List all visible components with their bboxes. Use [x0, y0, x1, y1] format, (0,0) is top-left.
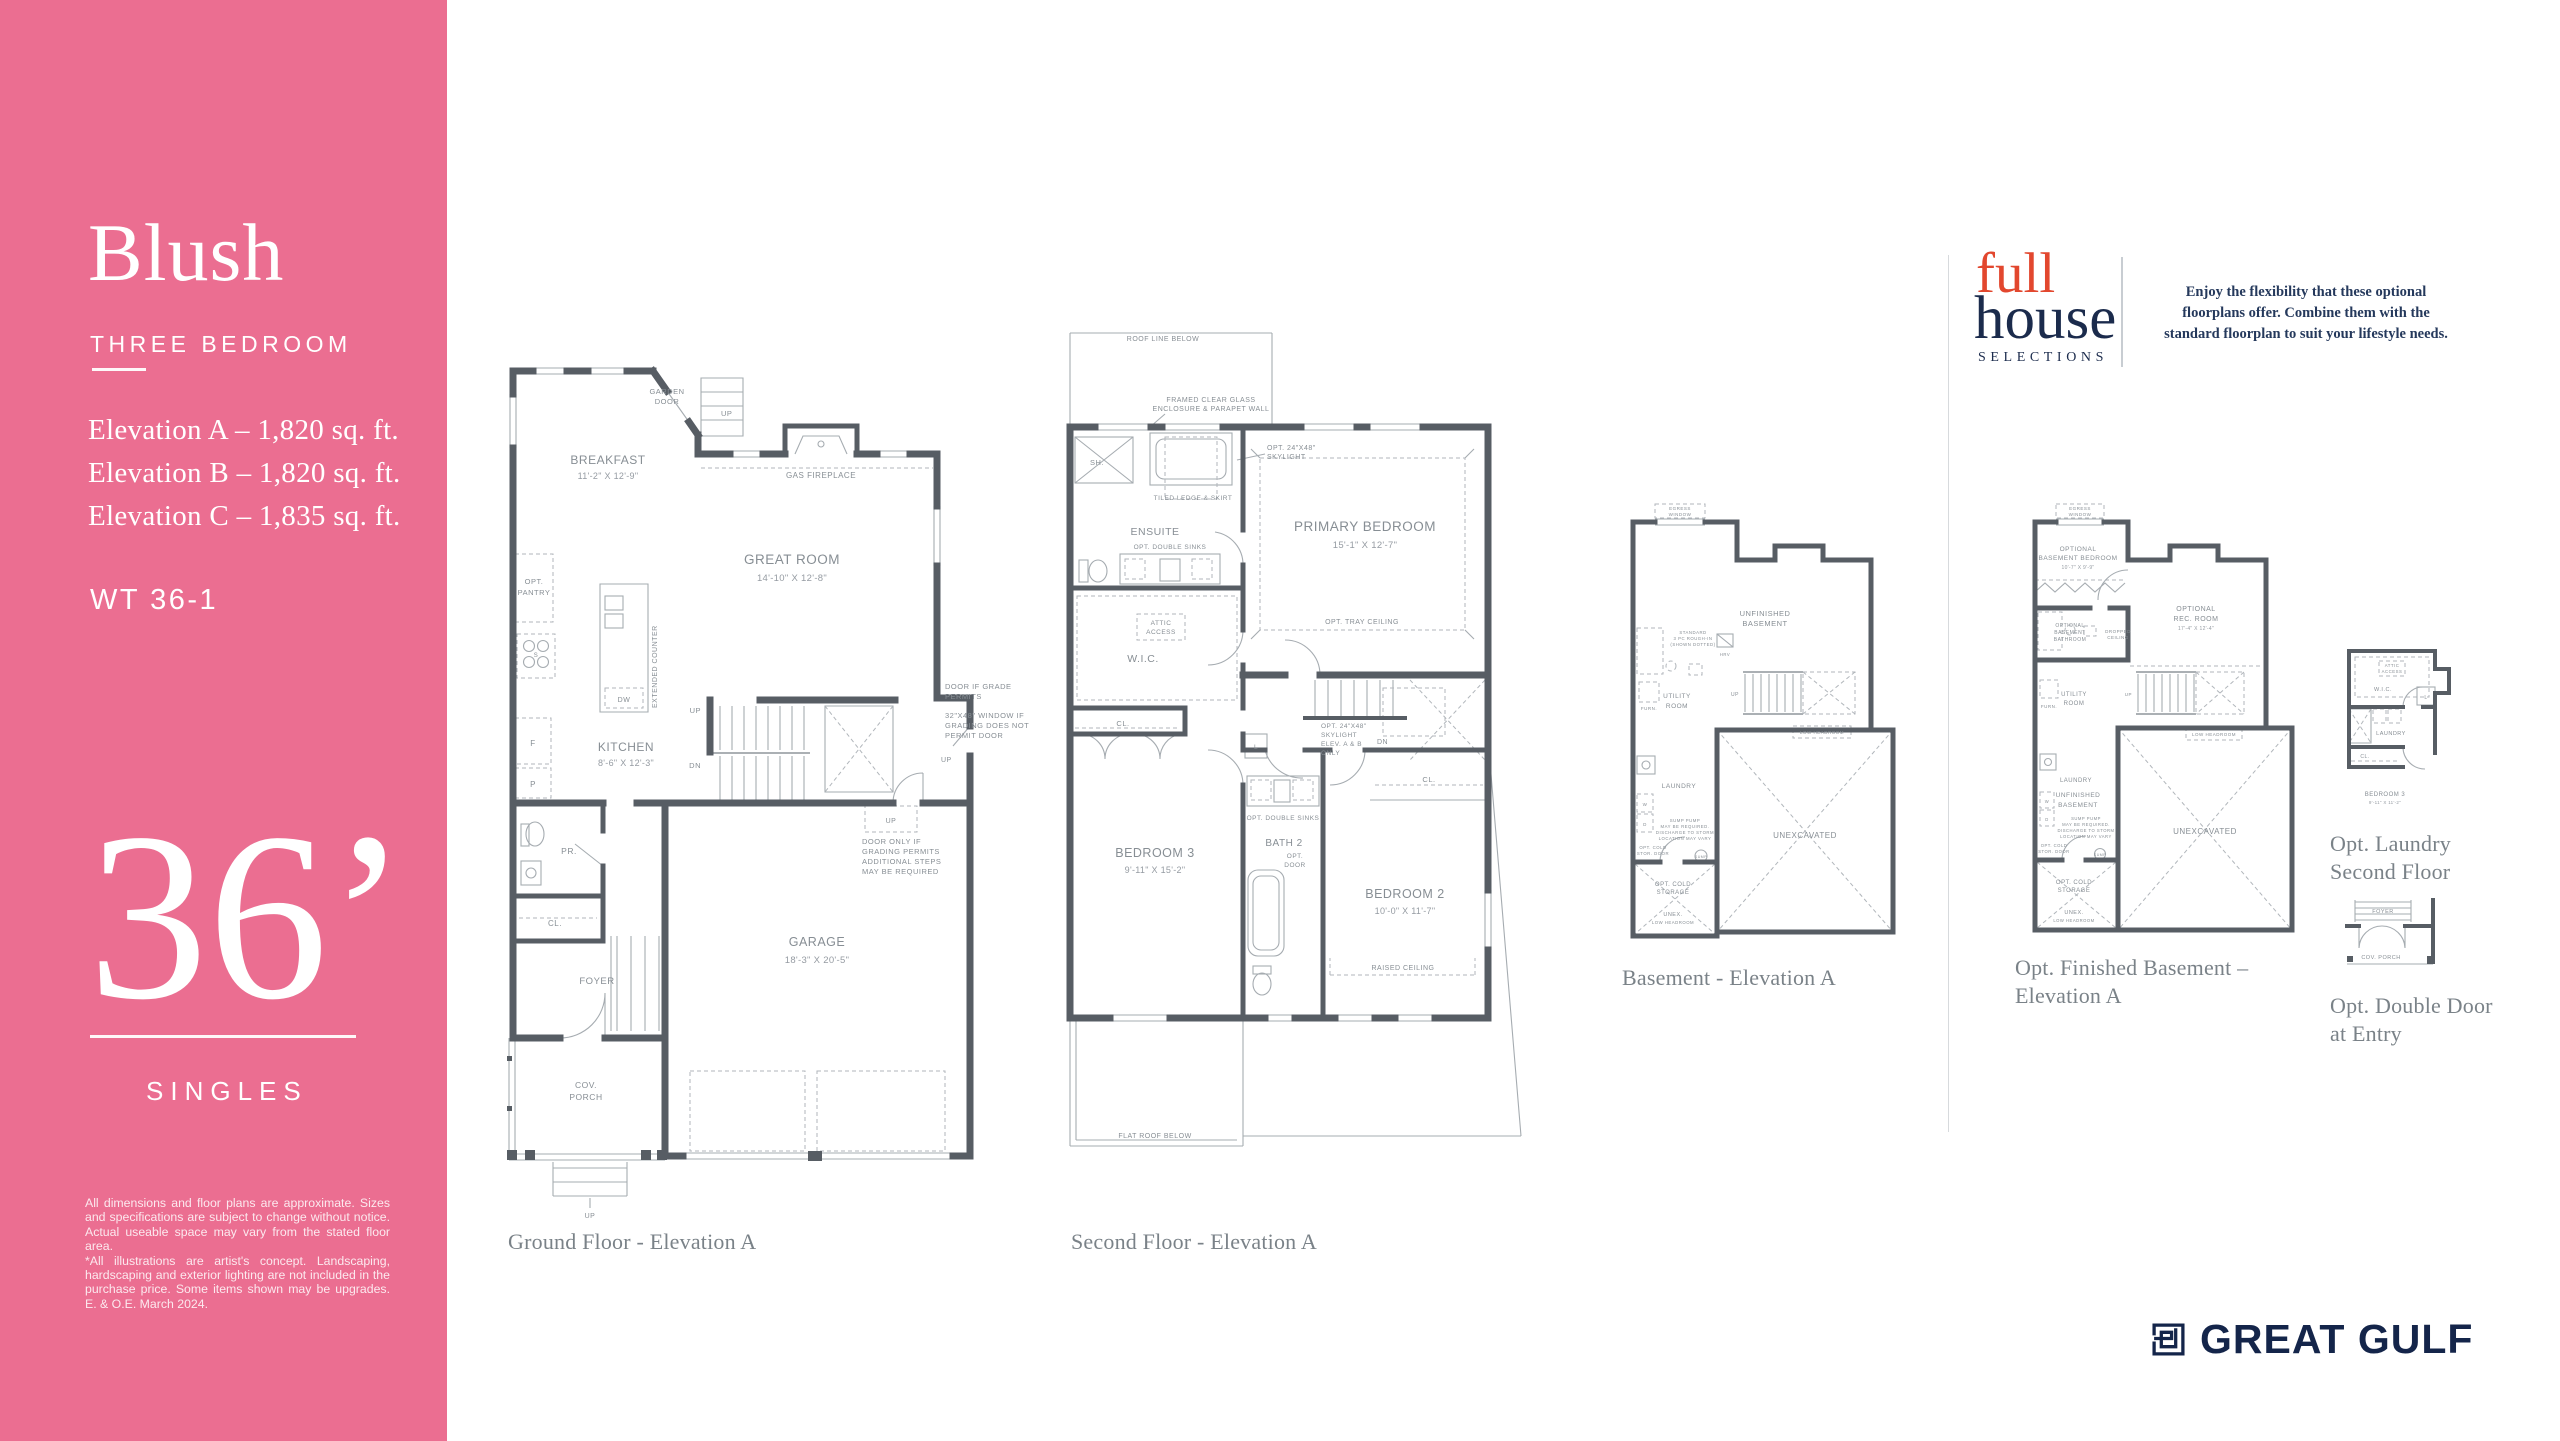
label-dryer: D [1643, 822, 1647, 827]
label-washer: W [1643, 802, 1648, 807]
label-p: P [530, 780, 536, 789]
label-opt-pantry-1: OPT. [525, 577, 544, 586]
fullhouse-blurb-line2: floorplans offer. Combine them with the [2150, 303, 2462, 324]
label-laundry: LAUNDRY [2376, 731, 2406, 737]
label-unfinished-1: UNFINISHED [1740, 609, 1791, 618]
label-low-headroom: LOW HEADROOM [1800, 730, 1844, 735]
elevation-c: Elevation C – 1,835 sq. ft. [88, 495, 401, 538]
label-washer: W [2045, 799, 2049, 804]
label-unex: UNEX. [1663, 912, 1682, 918]
label-s: S [534, 653, 539, 659]
basement-thin-lines [1635, 504, 1893, 934]
label-sump-4: LOCATION MAY VARY [1659, 836, 1712, 841]
label-garden-door-1: GARDEN [649, 387, 684, 396]
label-framed-1: FRAMED CLEAR GLASS [1166, 397, 1255, 404]
note-door-only-1: DOOR ONLY IF [862, 837, 921, 846]
label-sump-3: DISCHARGE TO STORM [1656, 830, 1714, 835]
label-dryer: D [2045, 817, 2049, 822]
fullhouse-logo-house: house [1974, 288, 2116, 349]
caption-opt-door-line1: Opt. Double Door [2330, 992, 2493, 1020]
lot-underline [90, 1035, 356, 1038]
room-label-kitchen: KITCHEN [598, 740, 654, 754]
lot-width: 36’ [88, 796, 408, 1036]
elevation-b: Elevation B – 1,820 sq. ft. [88, 452, 401, 495]
label-utility-1: UTILITY [2061, 692, 2087, 698]
optdoor-labels: FOYER COV. PORCH [2361, 909, 2400, 961]
fullhouse-logo-selections: SELECTIONS [1978, 350, 2108, 366]
room-label-porch-1: COV. [575, 1080, 597, 1090]
label-unexcavated: UNEXCAVATED [2173, 827, 2237, 836]
caption-opt-laundry-line2: Second Floor [2330, 858, 2451, 886]
label-rec-1: OPTIONAL [2176, 606, 2215, 613]
room-label-porch-2: PORCH [569, 1092, 602, 1102]
label-furnace: FURN. [1641, 706, 1657, 711]
label-f: F [530, 739, 535, 748]
category-label: SINGLES [146, 1076, 308, 1107]
label-optbath-2: BASEMENT [2054, 630, 2086, 636]
dim-garage: 18'-3" X 20'-5" [785, 955, 850, 966]
label-flat-roof: FLAT ROOF BELOW [1118, 1133, 1191, 1140]
caption-opt-door: Opt. Double Door at Entry [2330, 992, 2493, 1048]
label-sump-3: DISCHARGE TO STORM [2058, 828, 2115, 833]
disclaimer: All dimensions and floor plans are appro… [85, 1196, 390, 1311]
section-divider [1948, 255, 1949, 1132]
great-gulf-logo-icon [2150, 1321, 2187, 1358]
opt-double-door-plan: FOYER COV. PORCH [2345, 898, 2440, 983]
ground-floor-plan: BREAKFAST 11'-2" X 12'-9" GREAT ROOM 14'… [505, 356, 1050, 1231]
disclaimer-paragraph-2: *All illustrations are artist's concept.… [85, 1254, 390, 1312]
label-cold-door-1: OPT. COLD [1639, 845, 1666, 850]
label-cl: CL. [2360, 754, 2369, 760]
room-label-foyer: FOYER [579, 976, 614, 987]
room-label-ensuite: ENSUITE [1130, 526, 1179, 538]
label-sump-circle: SUMP [2094, 853, 2106, 857]
label-skylight2-4: ONLY [1321, 750, 1340, 757]
label-low-headroom: LOW HEADROOM [2192, 732, 2236, 737]
label-shower: SH. [1090, 458, 1104, 467]
caption-second-floor: Second Floor - Elevation A [1071, 1228, 1317, 1256]
label-laundry: LAUNDRY [1662, 783, 1697, 790]
dim-kitchen: 8'-6" X 12'-3" [598, 758, 654, 768]
caption-opt-door-line2: at Entry [2330, 1020, 2493, 1048]
dim-optbed: 10'-7" X 9'-9" [2061, 565, 2094, 571]
label-skylight2-3: ELEV. A & B [1321, 741, 1362, 748]
caption-opt-basement-line2: Elevation A [2015, 982, 2248, 1010]
elevation-list: Elevation A – 1,820 sq. ft. Elevation B … [88, 409, 401, 538]
label-garden-door-2: DOOR [655, 397, 680, 406]
label-optbath-1: OPTIONAL [2055, 623, 2084, 629]
room-label-bed2: BEDROOM 2 [1365, 887, 1445, 901]
label-opt-door-1: OPT. [1287, 853, 1303, 860]
basement-walls [1633, 522, 1893, 936]
label-framed-2: ENCLOSURE & PARAPET WALL [1153, 406, 1270, 413]
label-cold-door-1: OPT. COLD [2041, 843, 2068, 848]
label-cold-door-2: STOR. DOOR [1637, 851, 1669, 856]
caption-opt-laundry-line1: Opt. Laundry [2330, 830, 2451, 858]
label-wic: W.I.C. [2374, 687, 2392, 693]
label-egress-1: EGRESS [1669, 506, 1691, 511]
label-up-garage: UP [886, 818, 897, 825]
label-linen: L [2424, 695, 2427, 701]
note-door-only-2: GRADING PERMITS [862, 847, 940, 856]
label-rough-2: 3 PC ROUGH-IN [1674, 636, 1713, 641]
note-door-only-4: MAY BE REQUIRED [862, 867, 939, 876]
fullhouse-blurb-line1: Enjoy the flexibility that these optiona… [2150, 282, 2462, 303]
dim-bed2: 10'-0" X 11'-7" [1375, 906, 1436, 916]
sidebar: Blush THREE BEDROOM Elevation A – 1,820 … [0, 0, 447, 1441]
basement-labels: EGRESS WINDOW UNFINISHED BASEMENT STANDA… [1637, 506, 1844, 925]
label-optbed-1: OPTIONAL [2060, 546, 2097, 553]
dim-primary: 15'-1" X 12'-7" [1333, 540, 1398, 551]
room-label-primary: PRIMARY BEDROOM [1294, 519, 1436, 534]
room-label-breakfast: BREAKFAST [570, 453, 645, 467]
note-window-3: PERMIT DOOR [945, 731, 1003, 740]
label-up-side: UP [941, 757, 952, 764]
note-door-grade-2: PERMITS [945, 692, 982, 701]
label-opt-door-2: DOOR [1284, 862, 1306, 869]
label-utility-2: ROOM [1666, 703, 1688, 710]
label-roof-line: ROOF LINE BELOW [1127, 336, 1199, 343]
label-sump-1: SUMP PUMP [1670, 818, 1700, 823]
label-low-headroom2: LOW HEADROOM [2053, 918, 2094, 923]
label-up-porch: UP [585, 1213, 596, 1220]
room-label-powder: PR. [561, 846, 577, 856]
label-skylight-1: OPT. 24"X48" [1267, 445, 1316, 452]
brand-name: GREAT GULF [2200, 1316, 2473, 1363]
label-bed3: BEDROOM 3 [2365, 792, 2406, 798]
label-skylight2-2: SKYLIGHT [1321, 732, 1357, 739]
label-skylight2-1: OPT. 24"X48" [1321, 723, 1367, 730]
elevation-a: Elevation A – 1,820 sq. ft. [88, 409, 401, 452]
label-sump-4: LOCATION MAY VARY [2060, 834, 2112, 839]
label-sump-2: MAY BE REQUIRED. [1661, 824, 1710, 829]
caption-ground-floor: Ground Floor - Elevation A [508, 1228, 756, 1256]
room-label-garage: GARAGE [789, 935, 846, 949]
label-linen: L [1254, 744, 1258, 751]
caption-opt-basement: Opt. Finished Basement – Elevation A [2015, 954, 2248, 1010]
dim-rec: 17'-4" X 12'-4" [2178, 626, 2214, 632]
opt-laundry-plan: ATTIC ACCESS W.I.C. L LAUNDRY CL. BEDROO… [2345, 643, 2460, 813]
title-underline [92, 368, 146, 371]
room-label-wic: W.I.C. [1127, 653, 1159, 665]
label-sump-2: MAY BE REQUIRED. [2062, 822, 2110, 827]
label-egress-2: WINDOW [1669, 512, 1692, 517]
note-door-grade-1: DOOR IF GRADE [945, 682, 1012, 691]
label-attic-1: ATTIC [2385, 663, 2400, 668]
label-raised-ceiling: RAISED CEILING [1371, 965, 1434, 972]
caption-opt-basement-line1: Opt. Finished Basement – [2015, 954, 2248, 982]
label-optbed-2: BASEMENT BEDROOM [2038, 555, 2117, 562]
label-dn: DN [1377, 739, 1388, 746]
fullhouse-divider [2121, 257, 2123, 367]
label-hrv: HRV [1720, 652, 1730, 657]
brand-lockup: GREAT GULF [2150, 1316, 2473, 1363]
label-up-stairs: UP [690, 706, 701, 715]
label-cov-porch: COV. PORCH [2361, 955, 2400, 961]
caption-opt-laundry: Opt. Laundry Second Floor [2330, 830, 2451, 886]
dim-bed3: 9'-11" X 11'-2" [2369, 800, 2401, 805]
label-unfinished-1: UNFINISHED [2056, 792, 2101, 799]
label-egress-1: EGRESS [2069, 506, 2091, 511]
model-code: WT 36-1 [90, 584, 218, 617]
note-door-only-3: ADDITIONAL STEPS [862, 857, 941, 866]
label-extended-counter: EXTENDED COUNTER [652, 625, 659, 708]
label-skylight-2: SKYLIGHT [1267, 454, 1306, 461]
dim-bed3: 9'-11" X 15'-2" [1125, 865, 1186, 875]
label-furnace: FURN. [2041, 704, 2057, 709]
label-unfinished-2: BASEMENT [2058, 802, 2098, 809]
fullhouse-blurb: Enjoy the flexibility that these optiona… [2150, 282, 2462, 344]
label-unex: UNEX. [2064, 910, 2083, 916]
label-cold-storage-2: STORAGE [1657, 890, 1690, 896]
label-dropped-2: CEILING [2107, 635, 2129, 640]
label-low-headroom2: LOW HEADROOM [1652, 920, 1694, 925]
basement-plan: EGRESS WINDOW UNFINISHED BASEMENT STANDA… [1625, 500, 1935, 990]
caption-basement: Basement - Elevation A [1622, 964, 1836, 992]
label-tiled-ledge: TILED LEDGE & SKIRT [1154, 495, 1233, 502]
note-window-1: 32"X48" WINDOW IF [945, 711, 1024, 720]
room-label-bed3: BEDROOM 3 [1115, 846, 1195, 860]
label-rough-1: STANDARD [1679, 630, 1706, 635]
room-label-great-room: GREAT ROOM [744, 552, 840, 567]
room-label-closet: CL. [548, 919, 562, 928]
label-rec-2: REC. ROOM [2174, 616, 2219, 623]
optdoor-walls [2347, 898, 2433, 960]
label-attic-1: ATTIC [1151, 620, 1172, 627]
label-up: UP [2125, 692, 2132, 697]
dim-breakfast: 11'-2" X 12'-9" [578, 471, 639, 481]
second-floor-plan: ROOF LINE BELOW FRAMED CLEAR GLASS ENCLO… [1065, 330, 1585, 1260]
subtitle: THREE BEDROOM [90, 331, 352, 358]
page-title: Blush [88, 212, 284, 294]
dim-great-room: 14'-10" X 12'-8" [757, 573, 827, 584]
label-up: UP [1731, 692, 1739, 698]
label-gas-fireplace: GAS FIREPLACE [786, 471, 856, 480]
label-dn-stairs: DN [689, 761, 701, 770]
label-unexcavated: UNEXCAVATED [1773, 831, 1837, 840]
label-cold-door-2: STOR. DOOR [2038, 849, 2069, 854]
label-cl-bed3: CL. [1116, 719, 1129, 728]
opt-finished-basement-plan: EGRESS WINDOW OPTIONAL BASEMENT BEDROOM … [2030, 500, 2330, 945]
label-tray-ceiling: OPT. TRAY CEILING [1325, 619, 1399, 626]
label-opt-pantry-2: PANTRY [518, 588, 551, 597]
label-laundry: LAUNDRY [2060, 778, 2092, 784]
label-optbath-3: BATHROOM [2054, 637, 2087, 643]
label-sump-circle: SUMP [1695, 855, 1707, 859]
label-cl-bed2: CL. [1422, 775, 1435, 784]
fullhouse-blurb-line3: standard floorplan to suit your lifestyl… [2150, 324, 2462, 345]
label-attic-2: ACCESS [2382, 669, 2403, 674]
label-utility-1: UTILITY [1663, 693, 1691, 700]
label-up-deck: UP [721, 409, 732, 418]
label-egress-2: WINDOW [2069, 512, 2092, 517]
disclaimer-paragraph-1: All dimensions and floor plans are appro… [85, 1196, 390, 1254]
room-label-bath2: BATH 2 [1265, 838, 1302, 849]
ground-walls [513, 371, 970, 1156]
label-double-sinks: OPT. DOUBLE SINKS [1134, 544, 1207, 551]
label-cold-storage-1: OPT. COLD [1655, 882, 1691, 888]
optbsmt-walls [2035, 522, 2292, 930]
label-cold-storage-2: STORAGE [2058, 888, 2091, 894]
label-attic-2: ACCESS [1146, 629, 1176, 636]
brochure-page: Blush THREE BEDROOM Elevation A – 1,820 … [0, 0, 2560, 1441]
label-double-sinks2: OPT. DOUBLE SINKS [1247, 815, 1320, 822]
label-dw: DW [618, 697, 631, 704]
label-dropped-1: DROPPED [2105, 629, 2131, 634]
label-cold-storage-1: OPT. COLD [2056, 880, 2092, 886]
label-rough-3: (SHOWN DOTTED) [1670, 642, 1715, 647]
label-unfinished-2: BASEMENT [1742, 619, 1787, 628]
label-utility-2: ROOM [2064, 701, 2085, 707]
label-sump-1: SUMP PUMP [2071, 816, 2101, 821]
label-foyer: FOYER [2372, 909, 2393, 915]
note-window-2: GRADING DOES NOT [945, 721, 1029, 730]
